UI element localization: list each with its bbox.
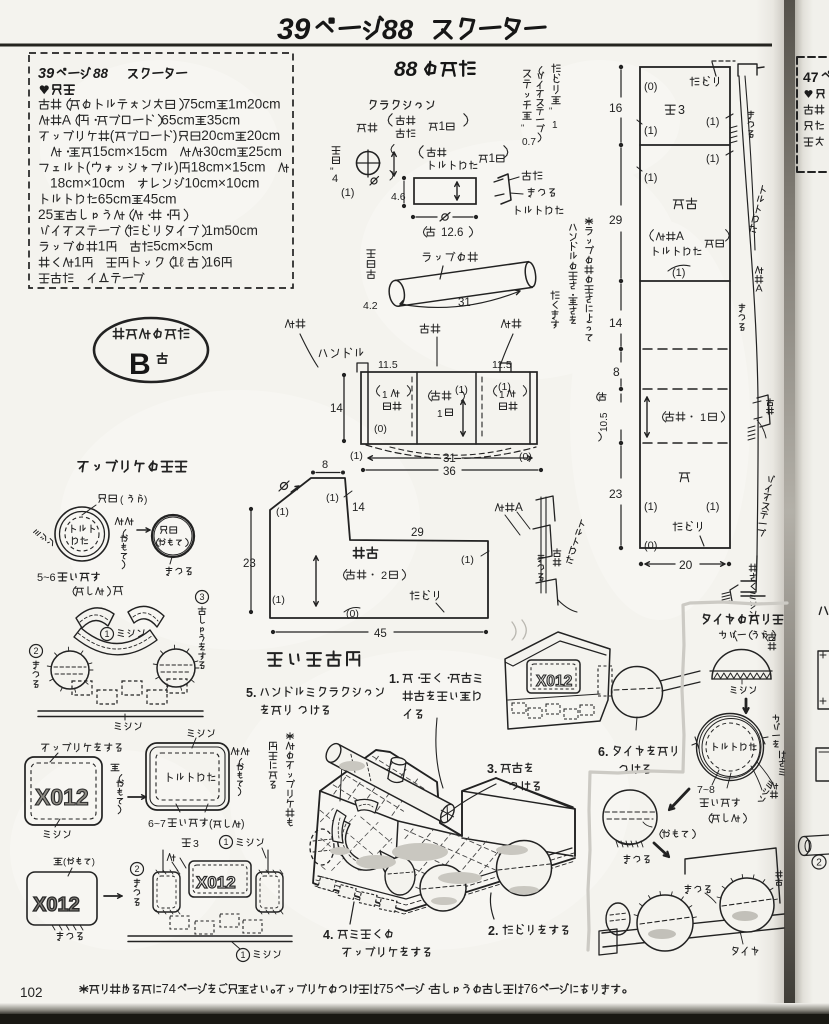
svg-text:(1): (1) xyxy=(276,506,289,518)
svg-text:(1): (1) xyxy=(706,116,719,128)
svg-text:(0): (0) xyxy=(644,81,657,93)
svg-text:8: 8 xyxy=(613,365,620,379)
svg-text:2: 2 xyxy=(33,646,38,656)
svg-text:2.: 2. xyxy=(488,924,498,938)
svg-text:0.7: 0.7 xyxy=(522,137,536,148)
svg-text:31: 31 xyxy=(458,297,471,309)
svg-text:1: 1 xyxy=(104,629,109,639)
svg-text:23: 23 xyxy=(609,487,623,501)
svg-text:1m20cm: 1m20cm xyxy=(228,97,280,112)
svg-text:(1): (1) xyxy=(706,153,719,165)
svg-text:(0): (0) xyxy=(644,540,657,552)
svg-text:20: 20 xyxy=(679,558,693,572)
svg-text:": " xyxy=(549,106,552,116)
svg-text:11.5: 11.5 xyxy=(492,359,512,371)
svg-text:1: 1 xyxy=(700,412,706,424)
svg-text:": " xyxy=(521,123,524,133)
svg-text:29: 29 xyxy=(411,527,424,539)
svg-text:102: 102 xyxy=(20,985,43,1000)
svg-text:25cm: 25cm xyxy=(248,144,281,159)
svg-text:30cm: 30cm xyxy=(203,144,236,159)
svg-text:16: 16 xyxy=(206,255,222,270)
svg-text:(1): (1) xyxy=(272,594,285,606)
svg-text:14: 14 xyxy=(609,316,623,330)
svg-text:(1): (1) xyxy=(341,187,354,199)
svg-text:45: 45 xyxy=(374,628,387,640)
svg-text:): ) xyxy=(92,856,95,867)
svg-text:X012: X012 xyxy=(196,873,236,892)
svg-text:25: 25 xyxy=(38,207,54,222)
svg-text:88: 88 xyxy=(394,58,418,81)
svg-text:1: 1 xyxy=(74,255,82,270)
svg-text:5~6: 5~6 xyxy=(37,572,56,584)
svg-text:14: 14 xyxy=(330,403,343,415)
svg-text:(1): (1) xyxy=(455,384,468,396)
svg-text:20cm: 20cm xyxy=(247,128,280,143)
svg-text:A: A xyxy=(676,229,684,243)
svg-text:A: A xyxy=(756,283,763,295)
svg-text:39: 39 xyxy=(277,13,311,46)
svg-text:B: B xyxy=(129,348,151,381)
svg-text:A: A xyxy=(515,500,523,514)
svg-text:): ) xyxy=(241,818,245,830)
svg-text:35cm: 35cm xyxy=(207,112,240,127)
svg-text:1: 1 xyxy=(382,390,388,401)
svg-text:31: 31 xyxy=(443,453,456,465)
svg-text:(1): (1) xyxy=(706,501,719,513)
svg-text:74: 74 xyxy=(162,981,176,996)
svg-text:1: 1 xyxy=(223,837,228,847)
svg-text:2: 2 xyxy=(816,858,822,869)
svg-text:88: 88 xyxy=(382,14,414,45)
svg-text:1: 1 xyxy=(552,120,558,131)
svg-text:1ℓ: 1ℓ xyxy=(172,255,185,270)
svg-text:1: 1 xyxy=(499,390,505,401)
svg-text:75cm: 75cm xyxy=(183,97,216,112)
svg-text:15cm×15cm: 15cm×15cm xyxy=(92,144,167,159)
svg-text:10cm×10cm: 10cm×10cm xyxy=(185,176,260,191)
svg-text:3: 3 xyxy=(678,103,685,117)
svg-text:1: 1 xyxy=(98,239,106,254)
svg-text:4: 4 xyxy=(332,173,338,185)
svg-text:11.5: 11.5 xyxy=(378,359,398,371)
svg-text:(: ( xyxy=(209,818,213,830)
svg-text:): ) xyxy=(144,495,147,506)
svg-text:65cm: 65cm xyxy=(98,191,131,206)
svg-text:1: 1 xyxy=(437,409,443,420)
svg-text:18cm×15cm: 18cm×15cm xyxy=(191,160,266,175)
svg-text:75: 75 xyxy=(379,981,393,996)
svg-text:1.: 1. xyxy=(389,672,399,686)
svg-text:(0): (0) xyxy=(374,423,387,435)
svg-text:2: 2 xyxy=(381,570,387,582)
svg-text:1: 1 xyxy=(439,119,446,133)
svg-text:6.: 6. xyxy=(598,745,608,759)
svg-text:36: 36 xyxy=(443,466,456,478)
svg-text:X012: X012 xyxy=(33,894,80,916)
svg-text:10.5: 10.5 xyxy=(599,412,610,432)
svg-text:5cm×5cm: 5cm×5cm xyxy=(153,239,213,254)
svg-text:5.: 5. xyxy=(246,686,256,700)
svg-text:(1): (1) xyxy=(326,492,339,504)
svg-text:23: 23 xyxy=(243,558,256,570)
svg-text:65cm: 65cm xyxy=(161,112,194,127)
svg-text:X012: X012 xyxy=(536,673,572,690)
svg-text:): ) xyxy=(173,128,178,143)
svg-text:(1): (1) xyxy=(644,501,657,513)
svg-text:14: 14 xyxy=(352,502,365,514)
svg-text:6~7: 6~7 xyxy=(148,818,166,830)
svg-text:(1): (1) xyxy=(461,554,474,566)
svg-text:76: 76 xyxy=(524,981,538,996)
svg-text:16: 16 xyxy=(609,101,623,115)
svg-text:1m50cm: 1m50cm xyxy=(205,223,257,238)
svg-text:39: 39 xyxy=(38,66,54,82)
svg-text:(: ( xyxy=(86,160,91,175)
svg-text:3.: 3. xyxy=(487,762,497,776)
svg-text:(: ( xyxy=(110,128,115,143)
svg-text:20cm: 20cm xyxy=(201,128,234,143)
svg-text:7~8: 7~8 xyxy=(697,784,715,796)
svg-text:(1): (1) xyxy=(672,267,685,279)
svg-text:3: 3 xyxy=(193,838,199,850)
svg-text:18cm×10cm: 18cm×10cm xyxy=(50,176,125,191)
svg-text:1: 1 xyxy=(240,950,245,960)
svg-text:47: 47 xyxy=(803,69,819,85)
svg-text:A: A xyxy=(62,112,72,127)
svg-text:4.2: 4.2 xyxy=(363,300,378,312)
svg-text:(1): (1) xyxy=(350,450,363,462)
svg-text:8: 8 xyxy=(322,459,328,471)
svg-text:4.: 4. xyxy=(323,928,333,942)
svg-text:88: 88 xyxy=(93,66,109,81)
svg-text:3: 3 xyxy=(199,592,204,602)
svg-text:): ) xyxy=(174,160,179,175)
svg-text:(1): (1) xyxy=(644,125,657,137)
svg-text:29: 29 xyxy=(609,213,623,227)
svg-text:X012: X012 xyxy=(35,784,89,810)
svg-text:12.6: 12.6 xyxy=(441,227,463,239)
svg-text:2: 2 xyxy=(134,864,139,874)
svg-text:1: 1 xyxy=(489,151,496,165)
svg-text:(1): (1) xyxy=(644,172,657,184)
svg-text:45cm: 45cm xyxy=(143,191,176,206)
